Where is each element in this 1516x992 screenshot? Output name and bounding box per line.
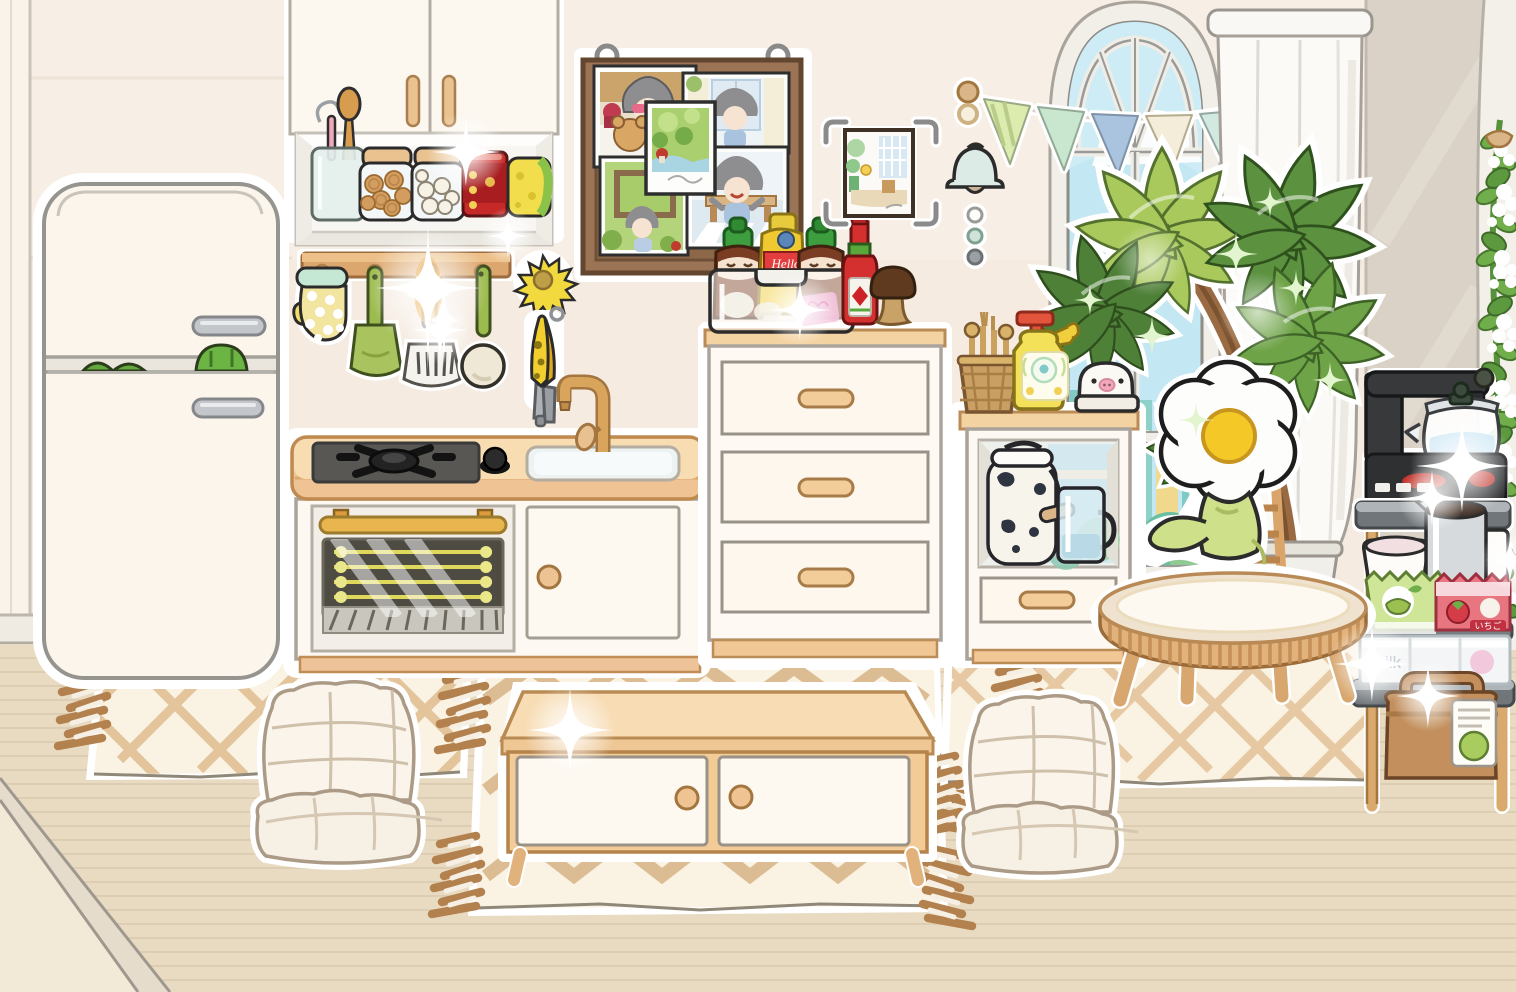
svg-text:いちご: いちご bbox=[1474, 620, 1501, 631]
